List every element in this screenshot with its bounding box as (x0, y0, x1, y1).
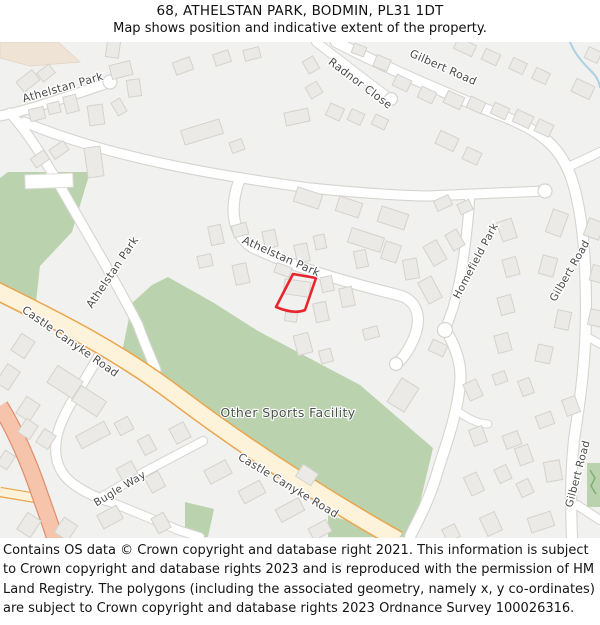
map-svg: Athelstan Park Radnor Close Gilbert Road… (0, 42, 600, 538)
building-footprint (554, 310, 571, 331)
building-footprint (319, 348, 334, 364)
area-label-other-sports-facility: Other Sports Facility (220, 405, 355, 420)
building-footprint (402, 258, 419, 280)
white-building (25, 173, 73, 189)
property-map-page: 68, ATHELSTAN PARK, BODMIN, PL31 1DT Map… (0, 0, 600, 625)
building-footprint (320, 275, 335, 292)
building-footprint (126, 79, 141, 98)
building-footprint (535, 344, 553, 364)
building-footprint (284, 312, 297, 323)
building-footprint (87, 104, 105, 126)
map-header: 68, ATHELSTAN PARK, BODMIN, PL31 1DT Map… (0, 0, 600, 42)
building-footprint (543, 460, 562, 482)
page-subtitle: Map shows position and indicative extent… (0, 21, 600, 36)
page-title: 68, ATHELSTAN PARK, BODMIN, PL31 1DT (0, 0, 600, 19)
building-footprint (283, 279, 311, 297)
building-footprint (84, 146, 104, 178)
building-footprint (105, 42, 120, 58)
building-footprint (313, 234, 327, 250)
map-image: Athelstan Park Radnor Close Gilbert Road… (0, 42, 600, 538)
copyright-footer: Contains OS data © Crown copyright and d… (0, 538, 599, 625)
building-footprint (47, 101, 61, 115)
building-footprint (197, 254, 213, 269)
